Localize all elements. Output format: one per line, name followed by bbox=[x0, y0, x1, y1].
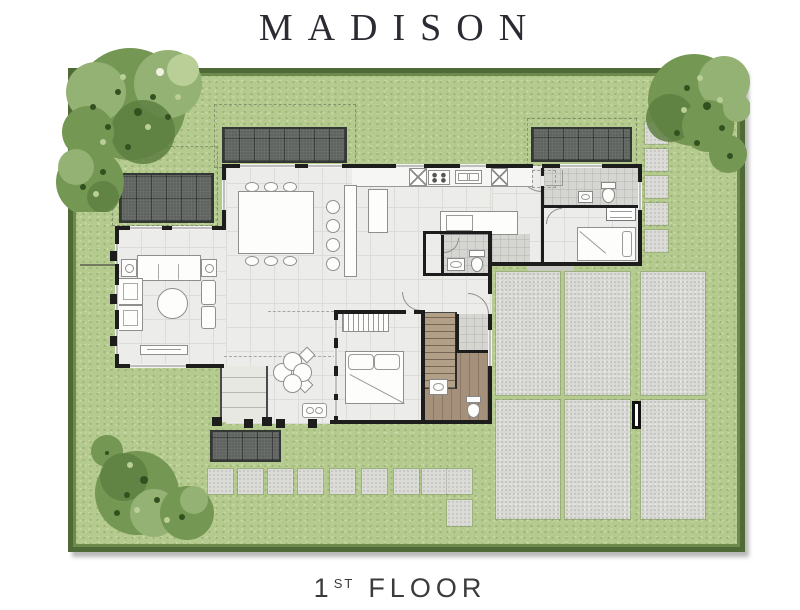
driveway-pad bbox=[496, 400, 560, 519]
stepping-stone bbox=[298, 469, 323, 494]
floor-label: 1STFLOOR bbox=[0, 573, 800, 604]
shower-floor bbox=[458, 314, 488, 351]
stairs bbox=[424, 312, 457, 389]
driveway-pad bbox=[565, 272, 630, 395]
post bbox=[110, 294, 117, 304]
porch-steps bbox=[220, 366, 268, 422]
interior-wall bbox=[423, 234, 426, 274]
window bbox=[488, 330, 492, 366]
window bbox=[460, 164, 486, 168]
toilet bbox=[600, 182, 617, 203]
interior-wall bbox=[544, 205, 638, 208]
open-boundary bbox=[224, 356, 336, 357]
window bbox=[222, 180, 226, 210]
interior-wall bbox=[423, 231, 492, 234]
window bbox=[172, 226, 212, 230]
gate-post bbox=[632, 401, 641, 429]
page: MADISON bbox=[0, 0, 800, 610]
window bbox=[240, 164, 295, 168]
stepping-stone bbox=[330, 469, 355, 494]
window bbox=[130, 364, 186, 368]
window bbox=[130, 226, 162, 230]
bath-vanity bbox=[429, 379, 448, 395]
interior-wall bbox=[488, 231, 492, 266]
label-box bbox=[606, 206, 636, 221]
maid-bed bbox=[577, 227, 636, 261]
side-table bbox=[201, 259, 217, 277]
interior-wall bbox=[423, 273, 492, 276]
coffee-table bbox=[157, 288, 188, 319]
toilet bbox=[464, 396, 483, 418]
bar-counter bbox=[344, 185, 357, 277]
kitchen-sink bbox=[455, 170, 482, 184]
stepping-stone bbox=[362, 469, 387, 494]
exterior-wall bbox=[492, 262, 642, 266]
post bbox=[244, 419, 253, 428]
driveway-pad bbox=[641, 272, 705, 395]
stepping-stone bbox=[238, 469, 263, 494]
window bbox=[334, 400, 338, 416]
post bbox=[276, 419, 285, 428]
bar-stool bbox=[326, 238, 340, 252]
post bbox=[308, 419, 317, 428]
interior-wall bbox=[541, 168, 544, 176]
stepping-stone bbox=[394, 469, 419, 494]
stepping-stone bbox=[645, 203, 668, 225]
awning-right bbox=[531, 127, 632, 162]
stepping-stone bbox=[447, 469, 472, 494]
interior-wall bbox=[541, 186, 544, 264]
window bbox=[334, 376, 338, 394]
tree-cluster-top-left bbox=[48, 42, 208, 212]
wash-basin bbox=[447, 258, 465, 271]
stove bbox=[428, 170, 450, 185]
open-boundary bbox=[268, 311, 334, 312]
stepping-stone bbox=[268, 469, 293, 494]
refrigerator bbox=[409, 168, 427, 186]
terrace-table bbox=[283, 374, 302, 393]
wash-basin bbox=[578, 191, 593, 203]
side-table bbox=[121, 259, 137, 277]
stepping-stone bbox=[645, 230, 668, 252]
stepping-stone bbox=[645, 176, 668, 198]
ottoman bbox=[201, 280, 216, 305]
interior-wall bbox=[441, 235, 444, 275]
window bbox=[334, 320, 338, 338]
armchair bbox=[118, 305, 143, 331]
window bbox=[308, 164, 342, 168]
post bbox=[262, 417, 272, 426]
awning-rear bbox=[210, 430, 281, 462]
path-mark bbox=[80, 264, 115, 266]
shower-corner bbox=[546, 170, 563, 186]
armchair bbox=[118, 278, 143, 305]
driveway-pad bbox=[565, 400, 630, 519]
bar-stool bbox=[326, 200, 340, 214]
floor-ordinal: ST bbox=[334, 576, 355, 591]
kitchen-back-counter bbox=[368, 189, 388, 233]
driveway-pad bbox=[496, 272, 560, 395]
dining-chair bbox=[264, 256, 278, 266]
bar-stool bbox=[326, 219, 340, 233]
bed bbox=[345, 351, 404, 404]
stepping-stone bbox=[447, 500, 472, 526]
ottoman bbox=[201, 306, 216, 329]
toilet bbox=[468, 250, 486, 272]
interior-wall bbox=[334, 310, 406, 314]
window bbox=[334, 348, 338, 366]
dining-chair bbox=[283, 256, 297, 266]
window bbox=[560, 164, 602, 168]
tall-cabinet bbox=[491, 168, 508, 186]
tree-cluster-bottom-left bbox=[82, 425, 217, 547]
interior-wall bbox=[456, 350, 488, 353]
interior-wall bbox=[421, 310, 425, 422]
floor-word: FLOOR bbox=[368, 573, 486, 603]
post bbox=[110, 251, 117, 261]
exterior-wall bbox=[330, 420, 492, 424]
awning-top bbox=[222, 127, 347, 163]
post bbox=[110, 336, 117, 346]
sofa bbox=[137, 255, 201, 281]
site-plan bbox=[0, 0, 800, 610]
wardrobe bbox=[342, 312, 389, 332]
slippers bbox=[302, 403, 327, 418]
dining-table bbox=[238, 191, 314, 254]
rear-hall-floor bbox=[492, 234, 530, 264]
dining-chair bbox=[245, 256, 259, 266]
tv-console bbox=[140, 345, 188, 355]
stepping-stone bbox=[422, 469, 447, 494]
bar-stool bbox=[326, 257, 340, 271]
window bbox=[638, 182, 642, 210]
tree-cluster-top-right bbox=[642, 48, 750, 178]
interior-wall bbox=[456, 314, 459, 352]
interior-wall bbox=[414, 310, 421, 314]
window bbox=[396, 164, 424, 168]
floor-number: 1 bbox=[314, 573, 334, 603]
driveway-pad bbox=[641, 400, 705, 519]
exterior-wall bbox=[488, 266, 492, 294]
